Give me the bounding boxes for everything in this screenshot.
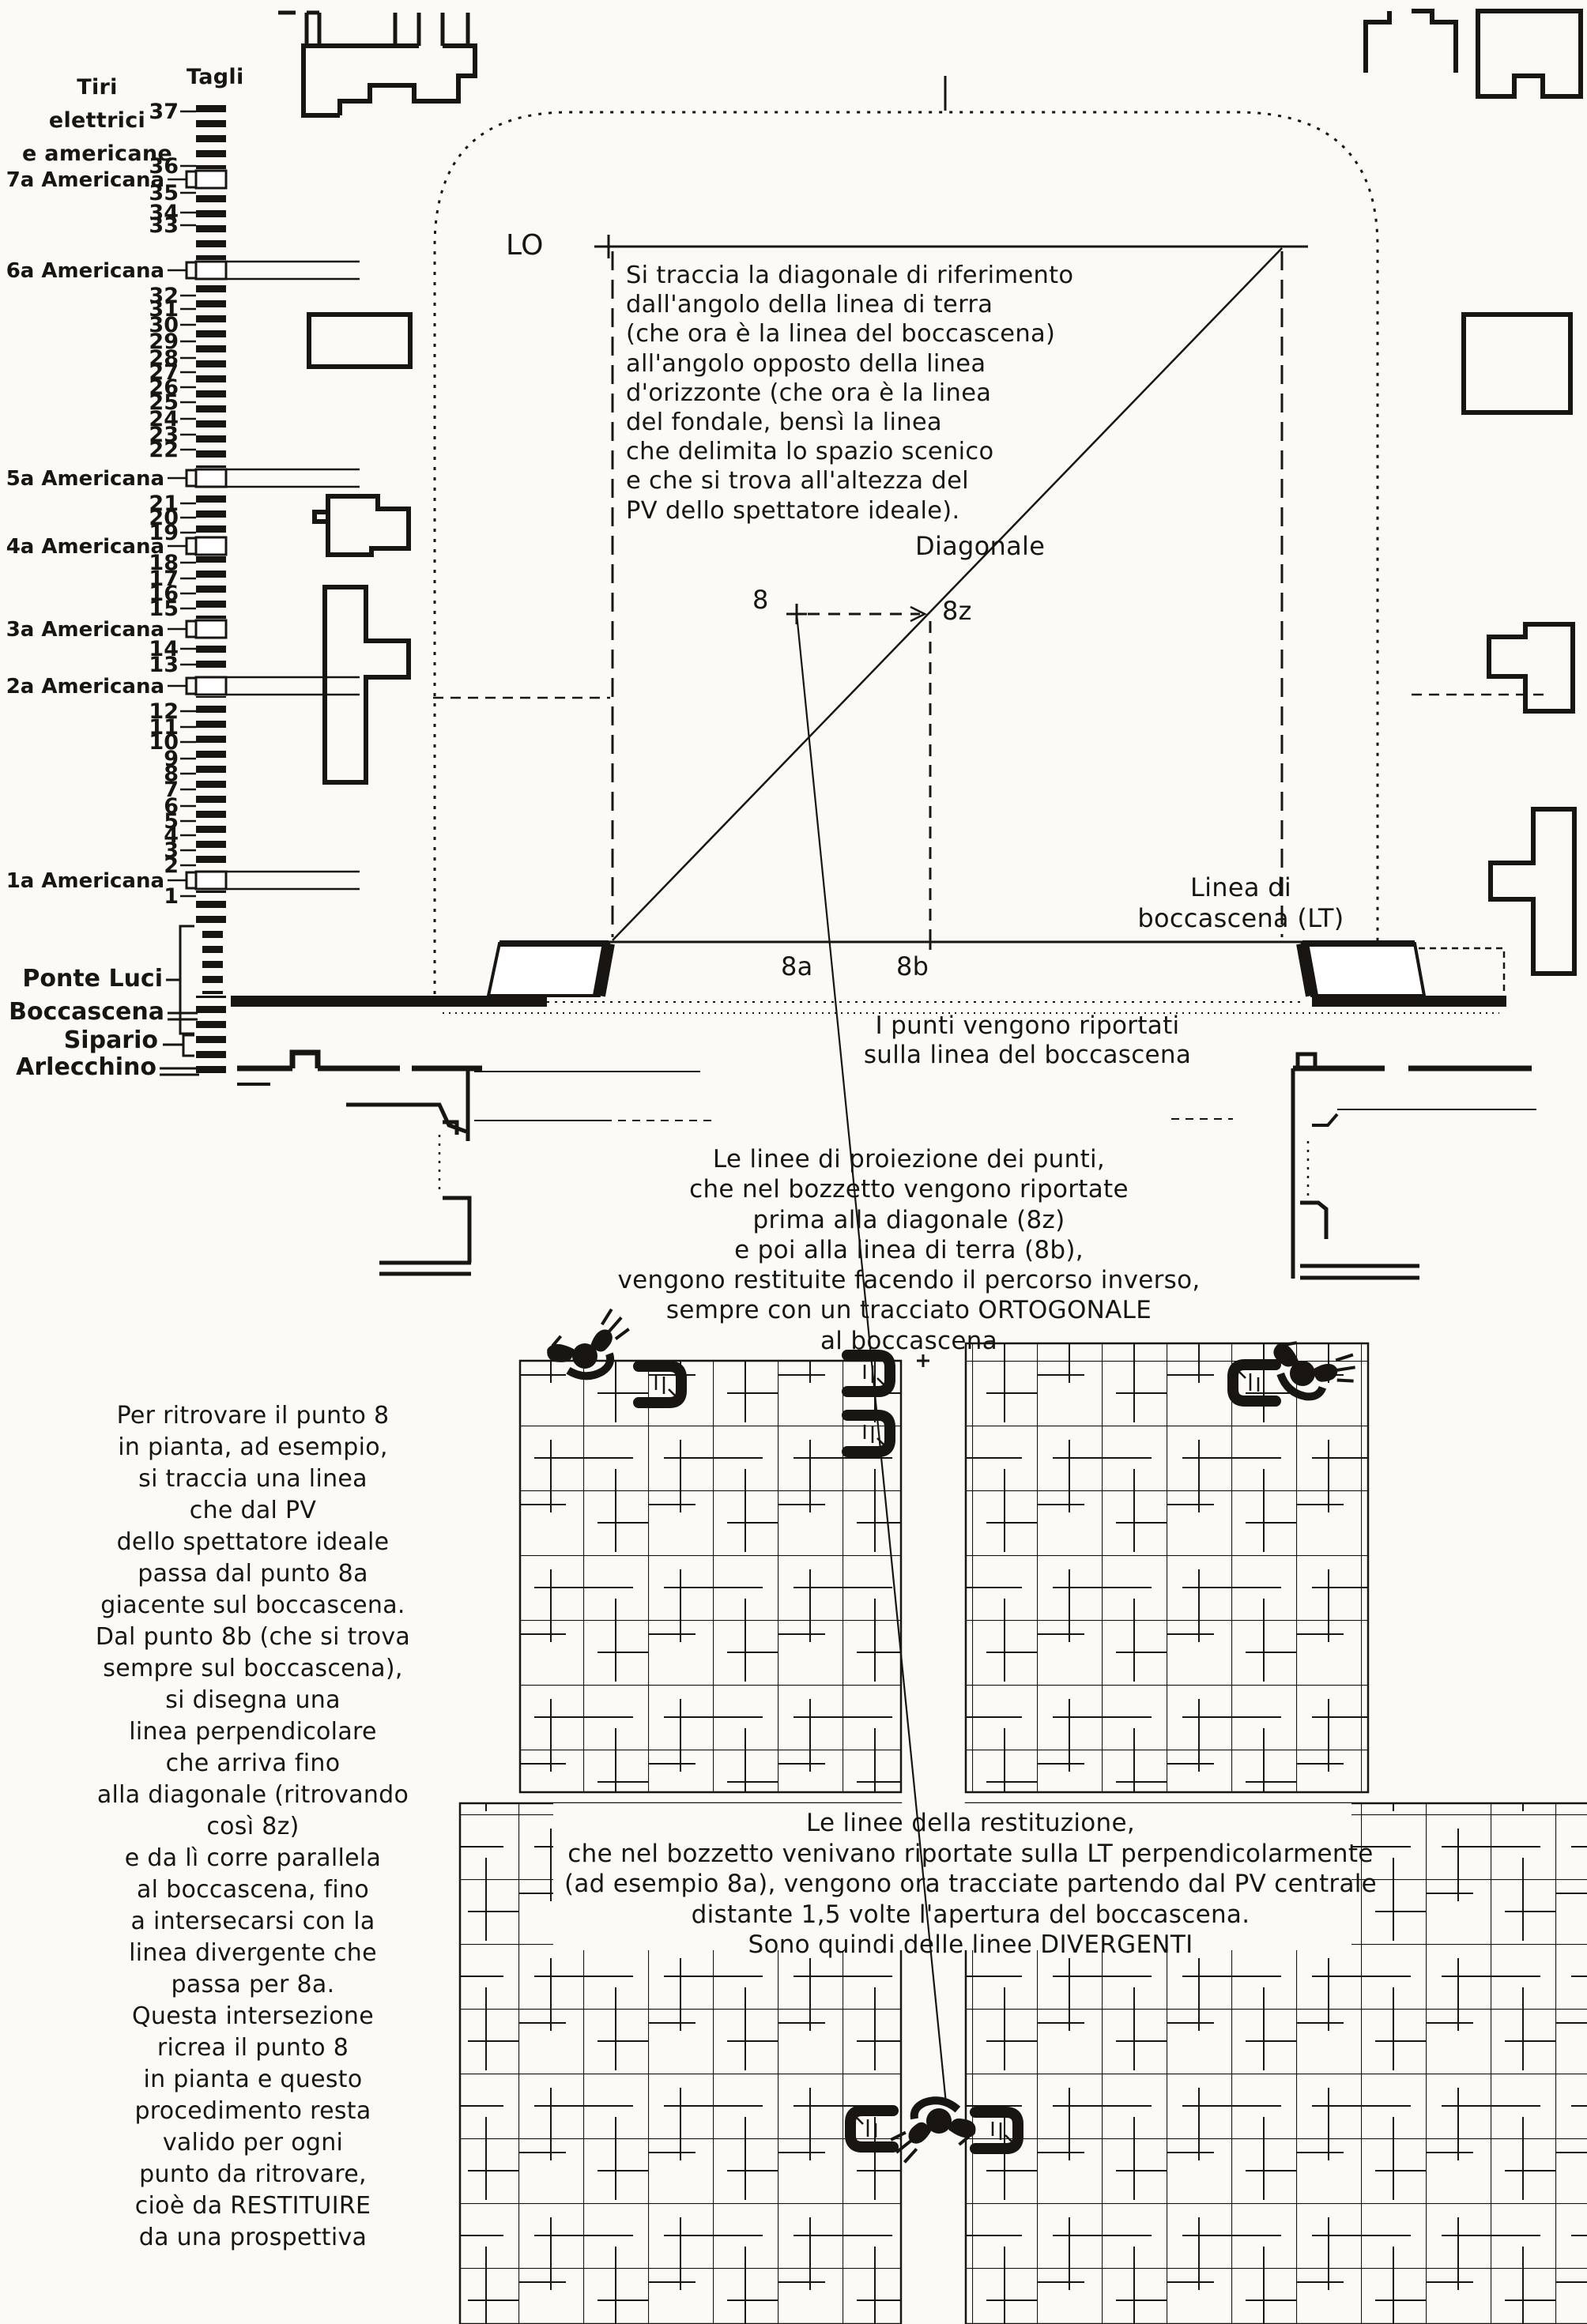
main-paragraph: Si traccia la diagonale di riferimento d… <box>626 261 1179 525</box>
lo-label: LO <box>506 229 544 262</box>
point-8a-label: 8a <box>781 951 813 981</box>
point-8-label: 8 <box>752 585 769 615</box>
lt-label: Linea di boccascena (LT) <box>1051 872 1431 934</box>
taglio-number: 22 <box>149 438 179 462</box>
point-8z-label: 8z <box>942 596 972 626</box>
proscenium-pillars <box>231 944 1506 1007</box>
fly-schedule-title: Tiri elettrici e americane <box>14 71 180 171</box>
fly-bottom-label: Sipario <box>64 1026 158 1054</box>
americana-label: 1a Americana <box>6 869 164 893</box>
fly-bottom-label: Ponte Luci <box>22 965 163 993</box>
fly-bar-strip <box>193 98 229 1075</box>
americana-label: 2a Americana <box>6 675 164 699</box>
taglio-number: 33 <box>149 213 179 238</box>
americana-label: 7a Americana <box>6 168 164 192</box>
tagli-column-header: Tagli <box>187 65 244 89</box>
americana-label: 4a Americana <box>6 535 164 559</box>
fly-bottom-label: Boccascena <box>9 998 164 1026</box>
projection-paragraph: Le linee di proiezione dei punti, che ne… <box>545 1144 1272 1356</box>
americana-label: 5a Americana <box>6 467 164 491</box>
point-8b-label: 8b <box>896 951 929 981</box>
taglio-number: 13 <box>149 653 179 677</box>
taglio-number: 1 <box>164 884 179 909</box>
fly-bottom-label: Arlecchino <box>16 1053 156 1081</box>
americana-label: 6a Americana <box>6 259 164 283</box>
book-diagram-page: 37367a Americana3534336a Americana323130… <box>0 0 1587 2324</box>
taglio-number: 2 <box>164 853 179 878</box>
diagonale-label: Diagonale <box>915 531 1045 561</box>
americana-label: 3a Americana <box>6 618 164 642</box>
points-note: I punti vengono riportati sulla linea de… <box>822 1011 1233 1070</box>
fly-schedule-generated: 37367a Americana3534336a Americana323130… <box>6 100 360 1081</box>
restitution-paragraph: Le linee della restituzione, che nel boz… <box>441 1808 1500 1961</box>
left-paragraph: Per ritrovare il punto 8 in pianta, ad e… <box>40 1400 466 2254</box>
